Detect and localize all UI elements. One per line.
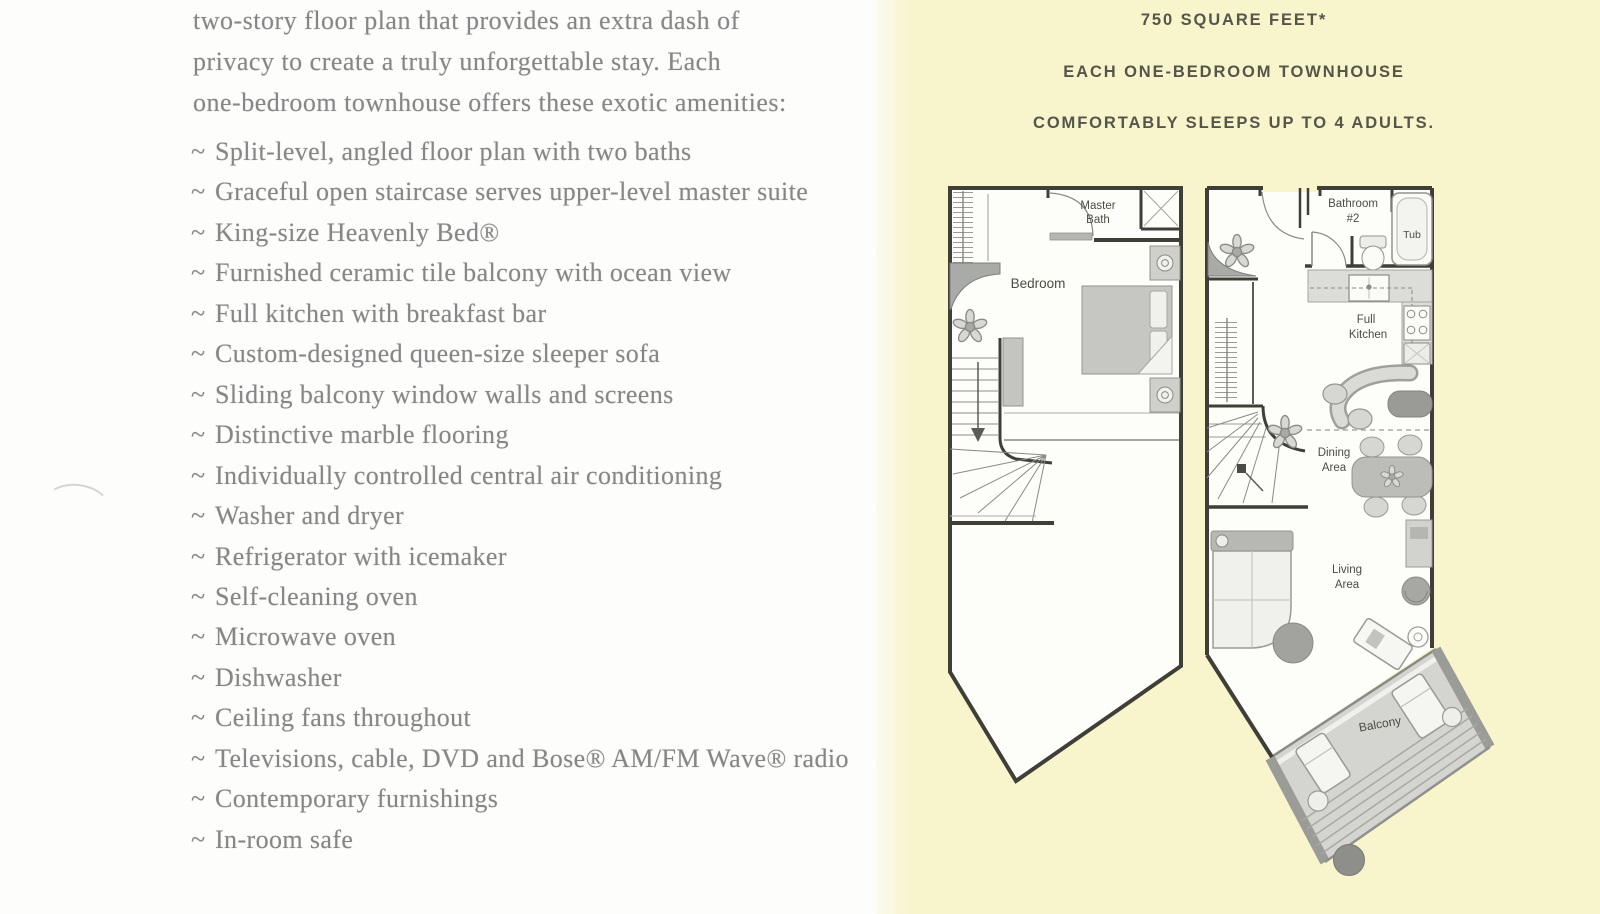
tilde-bullet: ~ [191, 820, 215, 860]
townhouse-text: EACH ONE-BEDROOM TOWNHOUSE [1003, 63, 1465, 82]
door-leaf [1050, 233, 1092, 240]
amenity-text: Dishwasher [215, 663, 342, 692]
bathroom2-label: Bathroom [1328, 198, 1378, 210]
amenity-text: Televisions, cable, DVD and Bose® AM/FM … [215, 744, 849, 773]
amenity-text: Custom-designed queen-size sleeper sofa [215, 339, 660, 368]
tilde-bullet: ~ [191, 456, 215, 496]
sleeps-text: COMFORTABLY SLEEPS UP TO 4 ADULTS. [1003, 114, 1465, 133]
bar-stool [1323, 384, 1347, 404]
amenity-text: Furnished ceramic tile balcony with ocea… [215, 258, 732, 287]
amenity-item: ~Split-level, angled floor plan with two… [191, 132, 849, 172]
amenity-item: ~Contemporary furnishings [191, 779, 849, 819]
amenity-item: ~Microwave oven [191, 617, 849, 657]
dining-chair [1398, 435, 1422, 455]
dining-chair [1402, 495, 1426, 515]
amenity-item: ~King-size Heavenly Bed® [191, 213, 849, 253]
scan-artifact-arc [42, 480, 113, 532]
tilde-bullet: ~ [191, 213, 215, 253]
amenity-text: Contemporary furnishings [215, 784, 498, 813]
bedroom-label: Bedroom [1011, 276, 1066, 291]
pillow [1150, 291, 1167, 328]
amenity-item: ~Ceiling fans throughout [191, 698, 849, 738]
plan-header: 750 SQUARE FEET* EACH ONE-BEDROOM TOWNHO… [1003, 11, 1465, 166]
plant-icon [1157, 387, 1173, 403]
tilde-bullet: ~ [191, 739, 215, 779]
amenity-text: Graceful open staircase serves upper-lev… [215, 177, 808, 206]
dining-label: Area [1322, 462, 1347, 474]
amenity-item: ~Dishwasher [191, 658, 849, 698]
amenity-item: ~Washer and dryer [191, 496, 849, 536]
column [1334, 845, 1365, 876]
newel-post [1237, 464, 1246, 473]
amenity-item: ~Sliding balcony window walls and screen… [191, 375, 849, 415]
floor-plan-upper-level: Master Bath Bedroom [950, 188, 1181, 781]
upper-plan-outline [950, 188, 1181, 781]
amenities-list: ~Split-level, angled floor plan with two… [191, 132, 849, 860]
kitchen-label: Full [1357, 314, 1376, 326]
amenity-item: ~Individually controlled central air con… [191, 456, 849, 496]
kitchen-label: Kitchen [1349, 329, 1387, 341]
tilde-bullet: ~ [191, 334, 215, 374]
tilde-bullet: ~ [191, 294, 215, 334]
amenity-text: Sliding balcony window walls and screens [215, 380, 674, 409]
intro-paragraph: two-story floor plan that provides an ex… [193, 0, 893, 123]
side-table [1408, 627, 1428, 647]
ottoman [1273, 623, 1313, 663]
bathroom2-label: #2 [1347, 213, 1360, 225]
amenity-item: ~In-room safe [191, 820, 849, 860]
amenity-text: Refrigerator with icemaker [215, 542, 507, 571]
amenity-text: King-size Heavenly Bed® [215, 218, 500, 247]
square-feet-text: 750 SQUARE FEET* [1003, 11, 1465, 30]
floor-plans: Master Bath Bedroom [900, 175, 1500, 914]
side-table [1308, 791, 1328, 811]
amenity-item: ~Distinctive marble flooring [191, 415, 849, 455]
amenity-item: ~Full kitchen with breakfast bar [191, 294, 849, 334]
tilde-bullet: ~ [191, 496, 215, 536]
tilde-bullet: ~ [191, 617, 215, 657]
tub-label: Tub [1403, 229, 1421, 241]
master-bath-label: Bath [1086, 214, 1110, 226]
amenity-text: Washer and dryer [215, 501, 404, 530]
lamp [1216, 535, 1228, 547]
toilet [1362, 246, 1384, 270]
tilde-bullet: ~ [191, 253, 215, 293]
dining-chair [1364, 497, 1388, 517]
dresser [1003, 338, 1023, 406]
tilde-bullet: ~ [191, 577, 215, 617]
swivel-chair [1402, 577, 1430, 605]
amenity-item: ~Refrigerator with icemaker [191, 537, 849, 577]
peninsula [1388, 391, 1432, 417]
floor-plan-main-level: Balcony Bathroom #2 [1207, 183, 1490, 876]
tilde-bullet: ~ [191, 698, 215, 738]
amenity-text: Individually controlled central air cond… [215, 461, 722, 490]
living-label: Living [1332, 564, 1362, 576]
amenity-item: ~Furnished ceramic tile balcony with oce… [191, 253, 849, 293]
tilde-bullet: ~ [191, 537, 215, 577]
amenity-text: Split-level, angled floor plan with two … [215, 137, 692, 166]
dining-chair [1360, 437, 1384, 457]
tilde-bullet: ~ [191, 779, 215, 819]
tilde-bullet: ~ [191, 415, 215, 455]
intro-line: two-story floor plan that provides an ex… [193, 0, 893, 41]
amenity-text: Distinctive marble flooring [215, 420, 509, 449]
amenity-item: ~Televisions, cable, DVD and Bose® AM/FM… [191, 739, 849, 779]
amenity-item: ~Graceful open staircase serves upper-le… [191, 172, 849, 212]
living-label: Area [1335, 579, 1360, 591]
intro-line: one-bedroom townhouse offers these exoti… [193, 82, 893, 123]
tv [1410, 527, 1428, 539]
amenity-text: In-room safe [215, 825, 353, 854]
amenity-item: ~Custom-designed queen-size sleeper sofa [191, 334, 849, 374]
dining-label: Dining [1318, 447, 1351, 459]
amenity-text: Microwave oven [215, 622, 396, 651]
tilde-bullet: ~ [191, 658, 215, 698]
tilde-bullet: ~ [191, 132, 215, 172]
tilde-bullet: ~ [191, 375, 215, 415]
plant-icon [1157, 255, 1173, 271]
amenity-text: Ceiling fans throughout [215, 703, 471, 732]
tilde-bullet: ~ [191, 172, 215, 212]
side-table [1443, 708, 1462, 727]
bar-stool [1348, 409, 1372, 429]
amenity-item: ~Self-cleaning oven [191, 577, 849, 617]
intro-line: privacy to create a truly unforgettable … [193, 41, 893, 82]
amenity-text: Full kitchen with breakfast bar [215, 299, 547, 328]
master-bath-label: Master [1080, 200, 1115, 212]
amenity-text: Self-cleaning oven [215, 582, 418, 611]
